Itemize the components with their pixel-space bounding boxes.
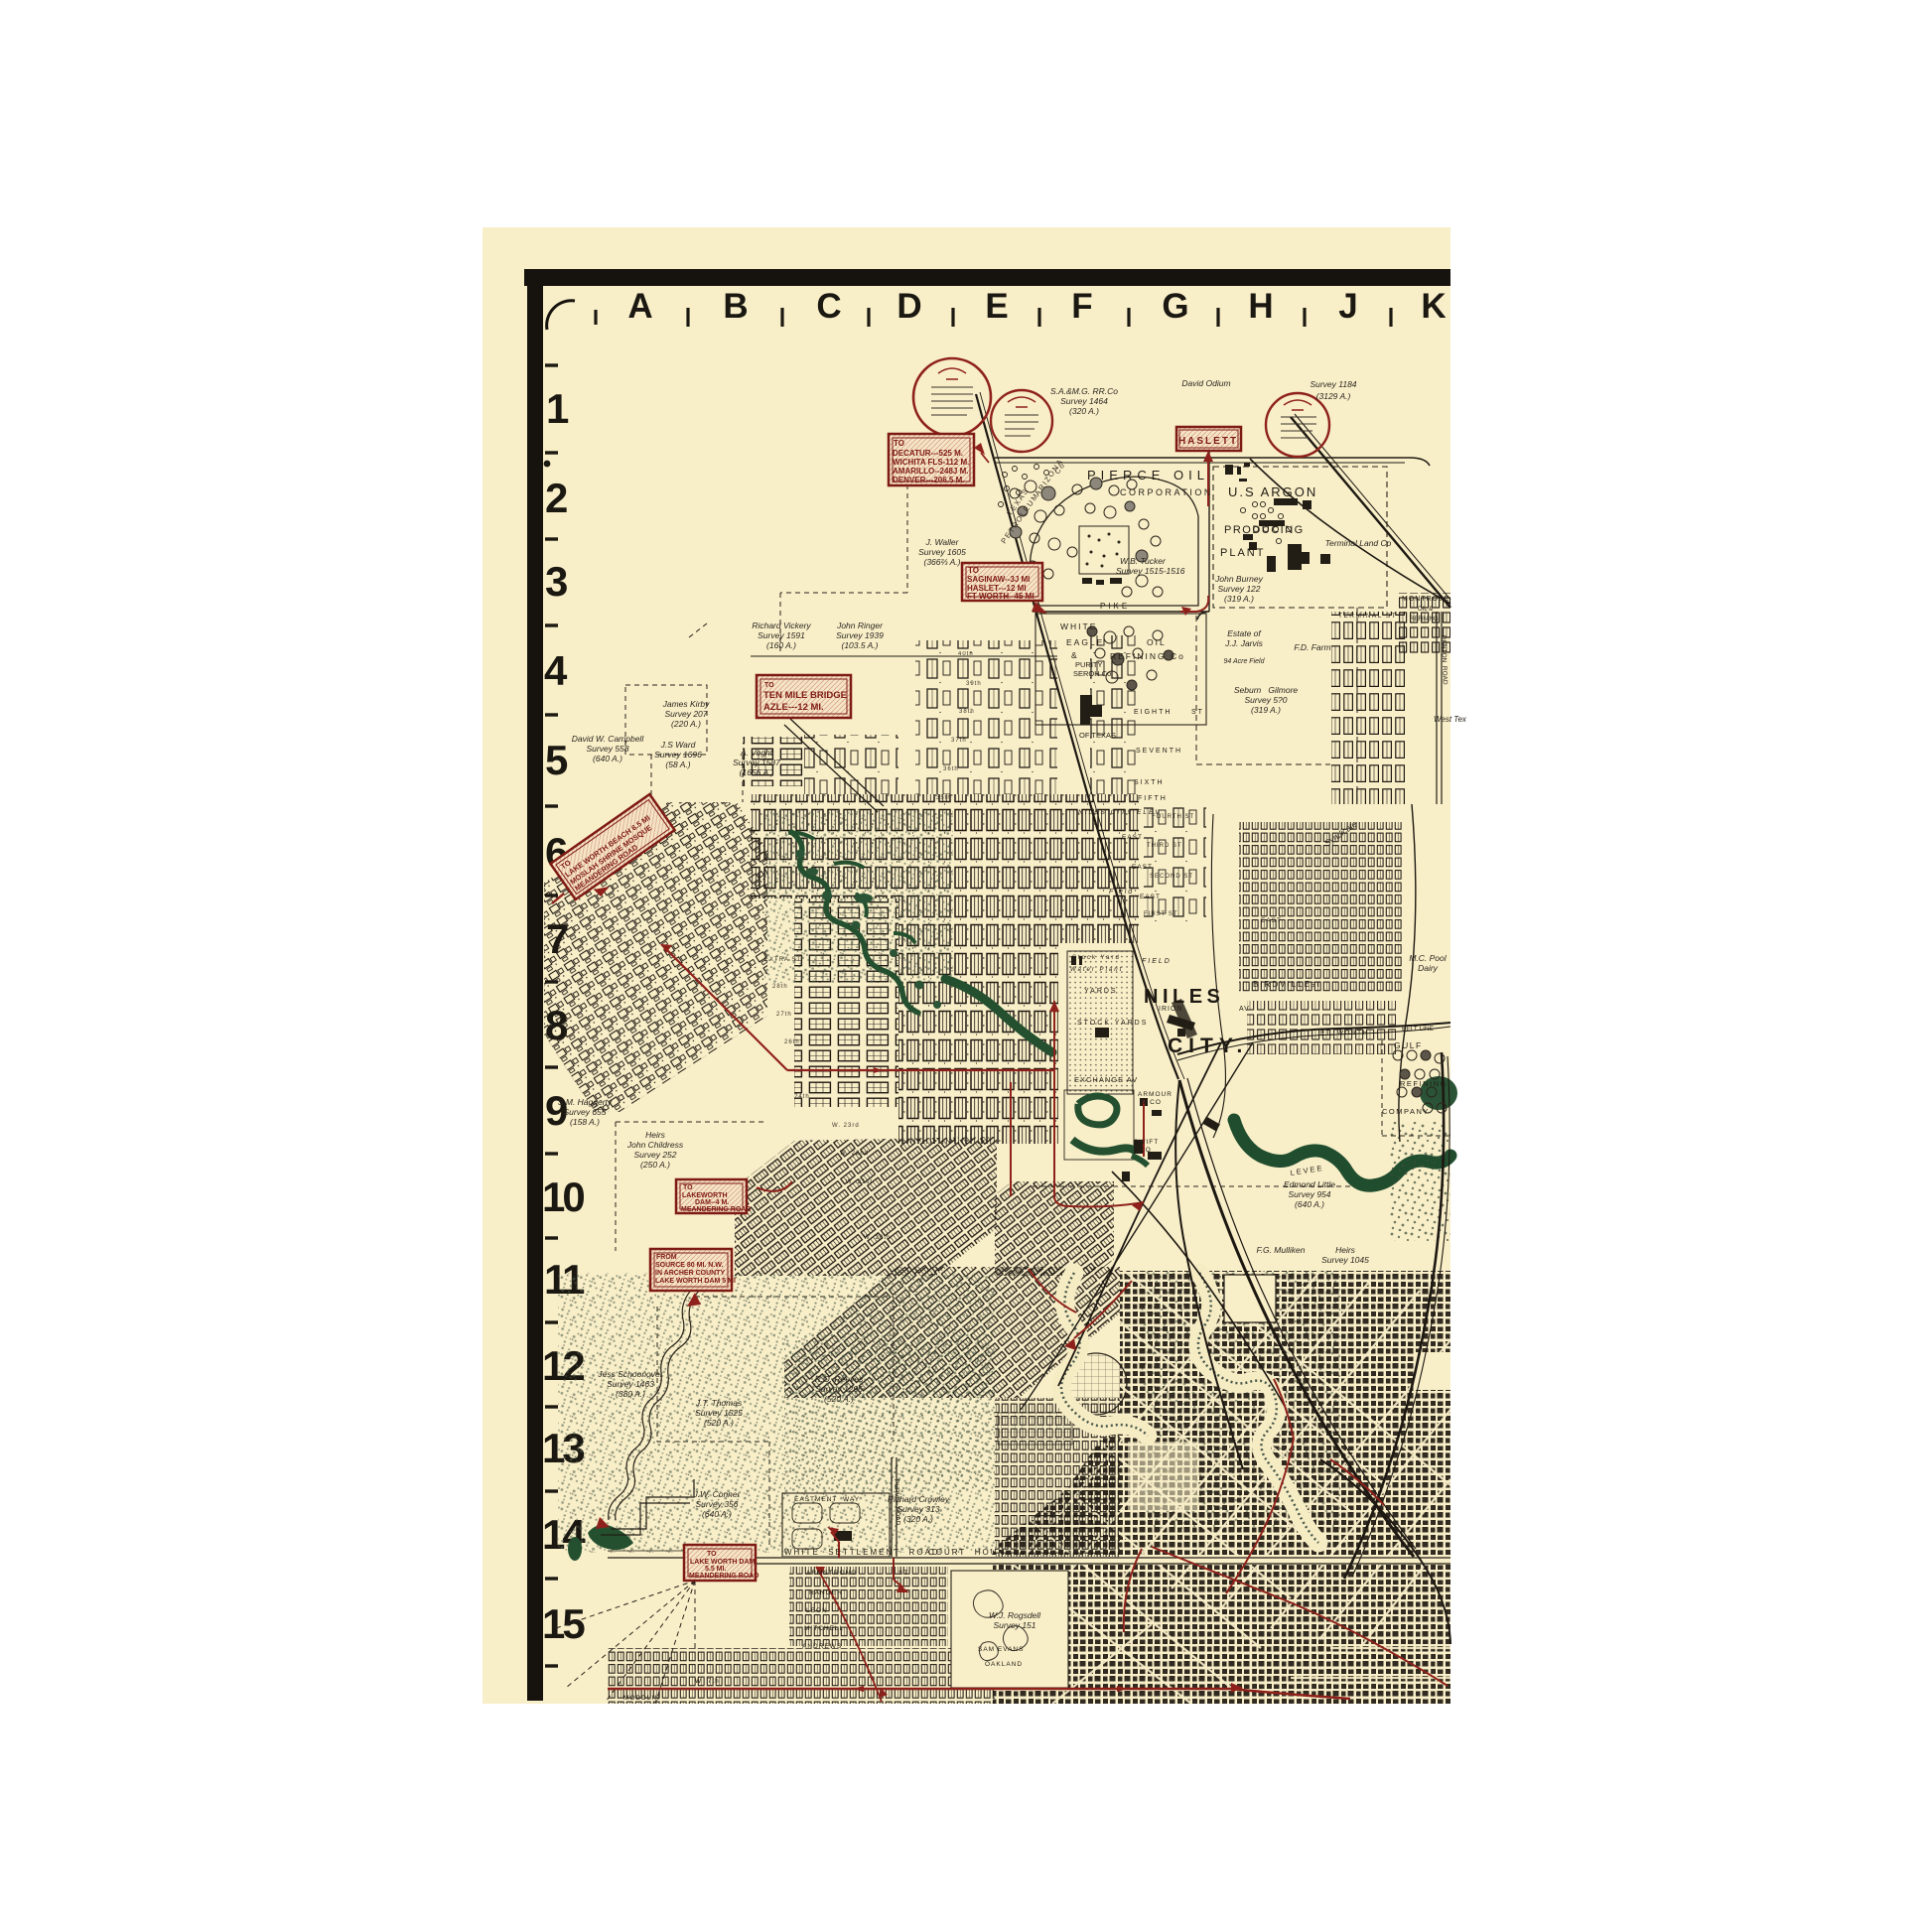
svg-text:W. 20th: W. 20th <box>864 1235 891 1241</box>
svg-text:WHITE: WHITE <box>1060 621 1097 631</box>
svg-text:SECOND ST: SECOND ST <box>1150 874 1193 880</box>
svg-text:David Odium: David Odium <box>1181 378 1230 388</box>
svg-text:36th: 36th <box>943 766 959 772</box>
svg-text:MONTROSE: MONTROSE <box>1402 596 1449 603</box>
svg-text:SAM EVANS: SAM EVANS <box>978 1646 1024 1653</box>
svg-text:G: G <box>1162 287 1188 326</box>
svg-text:PRODUCING: PRODUCING <box>1224 524 1305 536</box>
svg-text:ST: ST <box>1191 709 1204 716</box>
svg-text:S.A.&M.G. RR.Co: S.A.&M.G. RR.Co <box>1050 386 1118 396</box>
svg-text:Survey 1045: Survey 1045 <box>1321 1255 1369 1265</box>
svg-text:ARMOUR: ARMOUR <box>1138 1091 1173 1098</box>
svg-text:Survey 954: Survey 954 <box>1289 1189 1331 1199</box>
svg-text:B: B <box>723 287 748 326</box>
svg-text:J.J. Jarvis: J.J. Jarvis <box>1224 638 1264 648</box>
svg-text:F: F <box>1071 287 1092 326</box>
svg-text:C: C <box>816 287 841 326</box>
svg-text:(58 A.): (58 A.) <box>665 759 690 769</box>
svg-text:BIRDVILLE: BIRDVILLE <box>1253 980 1311 989</box>
svg-text:PLANT: PLANT <box>1220 547 1265 559</box>
svg-text:PURITY: PURITY <box>1075 660 1103 669</box>
svg-text:MITCHELL: MITCHELL <box>804 1625 844 1632</box>
svg-text:Survey 5?0: Survey 5?0 <box>1245 695 1288 705</box>
svg-text:A: A <box>627 287 652 326</box>
svg-text:SWIFT: SWIFT <box>1134 1139 1159 1146</box>
svg-text:Survey 655: Survey 655 <box>564 1107 607 1117</box>
svg-text:27th: 27th <box>776 1012 792 1018</box>
svg-text:Survey 1591: Survey 1591 <box>758 630 805 640</box>
svg-text:S.M. Haggerty: S.M. Haggerty <box>558 1097 613 1107</box>
svg-text:5.5 MI.: 5.5 MI. <box>705 1566 726 1573</box>
svg-text:Survey 1464: Survey 1464 <box>1060 396 1108 406</box>
svg-text:John Childress: John Childress <box>626 1140 684 1150</box>
svg-text:TERMINAL ST: TERMINAL ST <box>1338 613 1397 620</box>
svg-text:REFINING: REFINING <box>1400 1079 1448 1088</box>
svg-text:MEANDERING ROAD: MEANDERING ROAD <box>681 1206 751 1213</box>
svg-text:Edmond Little: Edmond Little <box>1284 1179 1335 1189</box>
svg-text:Survey 1939: Survey 1939 <box>836 630 884 640</box>
svg-text:W. 22nd: W. 22nd <box>840 1151 869 1157</box>
svg-text:(250 A.): (250 A.) <box>640 1160 670 1170</box>
svg-text:Seburn Gilmore: Seburn Gilmore <box>1234 685 1299 695</box>
svg-text:W. 23rd: W. 23rd <box>832 1123 860 1129</box>
svg-text:Survey 122: Survey 122 <box>1218 584 1261 594</box>
svg-text:(103.5 A.): (103.5 A.) <box>841 640 878 650</box>
svg-text:REFINING: REFINING <box>1410 617 1439 622</box>
svg-text:(158 A.): (158 A.) <box>570 1117 600 1127</box>
svg-text:W.J. Rogsdell: W.J. Rogsdell <box>989 1610 1041 1620</box>
svg-text:HASLETT: HASLETT <box>1178 436 1238 447</box>
svg-text:Terminal Land Co: Terminal Land Co <box>1325 538 1392 548</box>
svg-text:FROM: FROM <box>656 1254 677 1261</box>
svg-text:West Tex: West Tex <box>1434 715 1467 724</box>
svg-text:28th: 28th <box>772 984 788 990</box>
svg-text:EXCHANGE AV: EXCHANGE AV <box>1074 1075 1138 1084</box>
svg-text:1: 1 <box>546 385 569 432</box>
svg-text:WHITE SETTLEMENT ROAD: WHITE SETTLEMENT ROAD <box>784 1548 940 1557</box>
svg-text:(160 A.): (160 A.) <box>766 640 796 650</box>
svg-text:THIRD ST: THIRD ST <box>1147 843 1182 849</box>
svg-text:(640 A.): (640 A.) <box>593 754 622 763</box>
svg-text:Survey 207: Survey 207 <box>665 709 708 719</box>
svg-text:5: 5 <box>545 737 568 783</box>
svg-text:FIRST ST: FIRST ST <box>1144 911 1178 917</box>
svg-text:LAKEWORTH: LAKEWORTH <box>682 1192 728 1199</box>
svg-text:(320 A.): (320 A.) <box>903 1514 933 1524</box>
svg-text:FT WORTH--45 MI: FT WORTH--45 MI <box>967 592 1035 601</box>
svg-text:94 Acre Field: 94 Acre Field <box>1224 658 1266 665</box>
svg-text:YARDS: YARDS <box>1084 988 1118 995</box>
svg-text:David W. Campbell: David W. Campbell <box>572 734 645 744</box>
svg-text:AMARILLO--248J M.: AMARILLO--248J M. <box>893 467 968 476</box>
svg-text:PIKE: PIKE <box>1100 602 1130 611</box>
svg-text:REFINING Co: REFINING Co <box>1110 651 1185 661</box>
svg-text:BELT LINE: BELT LINE <box>1402 1026 1435 1033</box>
svg-text:F.D. Farm: F.D. Farm <box>1294 642 1330 652</box>
svg-text:35th: 35th <box>936 795 952 801</box>
svg-text:John Burney: John Burney <box>1214 574 1263 584</box>
svg-text:U.S ARGON: U.S ARGON <box>1228 484 1317 499</box>
svg-text:OF TEXAS: OF TEXAS <box>1079 731 1116 740</box>
svg-text:38th: 38th <box>959 709 975 715</box>
svg-text:W. 21st: W. 21st <box>846 1179 873 1185</box>
svg-text:Survey 1605: Survey 1605 <box>918 547 966 557</box>
svg-text:ARMSTRONG: ARMSTRONG <box>806 1570 857 1577</box>
svg-text:COURT HOU: COURT HOU <box>928 1548 999 1557</box>
svg-text:Survey 1515-1516: Survey 1515-1516 <box>1116 566 1185 576</box>
svg-text:FIFTH: FIFTH <box>1138 795 1168 802</box>
svg-text:EAST: EAST <box>1261 917 1282 924</box>
svg-text:Richard Crowley: Richard Crowley <box>888 1494 950 1504</box>
svg-text:Survey 1463: Survey 1463 <box>607 1379 654 1389</box>
svg-text:DENVER---206.5 M.: DENVER---206.5 M. <box>893 476 964 484</box>
svg-text:&: & <box>1071 650 1079 660</box>
svg-text:OAKLAND: OAKLAND <box>985 1661 1023 1668</box>
svg-text:SEVENTH: SEVENTH <box>1136 748 1182 755</box>
svg-text:F.G. Mulliken: F.G. Mulliken <box>1257 1245 1306 1255</box>
svg-text:CITY.: CITY. <box>1168 1035 1248 1057</box>
svg-text:TO: TO <box>968 566 979 575</box>
svg-text:A. Voght: A. Voght <box>740 748 773 758</box>
svg-text:J. Waller: J. Waller <box>925 537 960 547</box>
svg-text:Survey 313: Survey 313 <box>897 1504 940 1514</box>
svg-text:DAM--4 M.: DAM--4 M. <box>695 1199 729 1206</box>
svg-text:STOCK YARDS: STOCK YARDS <box>1077 1020 1148 1027</box>
svg-text:CORPORATION: CORPORATION <box>1120 487 1213 497</box>
svg-text:J.S Ward: J.S Ward <box>660 740 696 750</box>
svg-text:Water Plant: Water Plant <box>1070 967 1123 973</box>
svg-text:Estate of: Estate of <box>1227 628 1262 638</box>
svg-text:W 7th: W 7th <box>695 1678 720 1685</box>
svg-text:39th: 39th <box>966 681 982 687</box>
svg-text:SIXTH: SIXTH <box>1134 779 1165 786</box>
svg-text:D: D <box>897 287 921 326</box>
svg-text:E: E <box>985 287 1008 326</box>
svg-text:3: 3 <box>545 558 567 605</box>
svg-text:Survey 1295: Survey 1295 <box>815 1384 863 1394</box>
svg-text:EAST: EAST <box>1122 834 1143 841</box>
svg-text:EAST: EAST <box>1140 894 1161 900</box>
svg-text:W.B. Tucker: W.B. Tucker <box>1120 556 1167 566</box>
svg-text:(320 A.): (320 A.) <box>1069 406 1099 416</box>
svg-text:RANGER: RANGER <box>809 1589 843 1596</box>
svg-text:Survey 252: Survey 252 <box>634 1150 677 1160</box>
svg-text:LAKE WORTH DAM 5 MI: LAKE WORTH DAM 5 MI <box>655 1278 736 1285</box>
svg-text:Survey 558: Survey 558 <box>587 744 629 754</box>
svg-text:R.O. Reeves: R.O. Reeves <box>815 1374 864 1384</box>
svg-text:(1656 A.): (1656 A.) <box>740 767 774 777</box>
svg-text:15: 15 <box>542 1600 585 1647</box>
svg-text:10: 10 <box>542 1173 584 1220</box>
svg-text:40th: 40th <box>958 651 974 657</box>
svg-text:(319 A.): (319 A.) <box>1251 705 1281 715</box>
svg-text:(640 A.): (640 A.) <box>702 1509 732 1519</box>
svg-text:(319 A.): (319 A.) <box>1224 594 1254 604</box>
svg-text:John Ringer: John Ringer <box>836 621 884 630</box>
svg-text:IN ARCHER COUNTY: IN ARCHER COUNTY <box>655 1270 725 1277</box>
svg-text:Survey 151: Survey 151 <box>994 1620 1036 1630</box>
svg-text:(220 A.): (220 A.) <box>671 719 701 729</box>
svg-text:K: K <box>1421 287 1446 326</box>
svg-text:2: 2 <box>545 475 567 521</box>
svg-text:Survey 1184: Survey 1184 <box>1310 379 1356 389</box>
svg-text:TO: TO <box>894 439 904 448</box>
svg-text:(3129 A.): (3129 A.) <box>1316 391 1351 401</box>
svg-text:SAGINAW--3J MI: SAGINAW--3J MI <box>967 575 1030 584</box>
svg-text:DECATUR---525 M.: DECATUR---525 M. <box>893 449 963 458</box>
svg-text:J: J <box>1338 287 1357 326</box>
svg-text:Field: Field <box>1109 889 1134 896</box>
svg-text:CO: CO <box>1140 1147 1152 1154</box>
svg-text:ST: ST <box>898 1570 908 1577</box>
svg-text:FOURTH ST: FOURTH ST <box>1152 814 1194 820</box>
svg-text:37th: 37th <box>951 738 967 744</box>
svg-text:(380 A.): (380 A.) <box>616 1389 645 1399</box>
svg-text:SOURCE 80 MI. N.W.: SOURCE 80 MI. N.W. <box>655 1262 724 1269</box>
svg-text:AV: AV <box>1239 1006 1250 1013</box>
svg-text:TO: TO <box>683 1184 693 1191</box>
svg-text:J.T. Thomas: J.T. Thomas <box>695 1398 743 1408</box>
svg-text:J.W. Conner: J.W. Conner <box>693 1489 742 1499</box>
svg-text:OIL: OIL <box>1147 637 1167 647</box>
svg-text:Survey 1696: Survey 1696 <box>654 750 702 759</box>
svg-text:MEANDERING ROAD: MEANDERING ROAD <box>689 1573 759 1580</box>
svg-text:Heirs: Heirs <box>645 1130 666 1140</box>
svg-text:M.C. Pool: M.C. Pool <box>1409 953 1447 963</box>
svg-text:ST: ST <box>1311 982 1321 989</box>
svg-text:Jess Schoonover: Jess Schoonover <box>597 1369 663 1379</box>
svg-text:EASTMENT WAY: EASTMENT WAY <box>794 1496 860 1503</box>
svg-text:Richard Vickery: Richard Vickery <box>752 621 811 630</box>
svg-text:EXTRA ST: EXTRA ST <box>764 957 801 963</box>
svg-text:Survey 1525: Survey 1525 <box>695 1408 743 1418</box>
svg-text:NILES: NILES <box>1144 986 1224 1008</box>
svg-text:WICHITA FLS-112 M.: WICHITA FLS-112 M. <box>893 458 969 467</box>
svg-text:PIERCE OIL: PIERCE OIL <box>1087 468 1209 483</box>
svg-text:Survey 356: Survey 356 <box>696 1499 739 1509</box>
svg-text:James Kirby: James Kirby <box>662 699 711 709</box>
svg-text:COMPANY: COMPANY <box>1382 1107 1430 1116</box>
svg-text:26th: 26th <box>784 1039 800 1045</box>
svg-text:FIELD: FIELD <box>1142 958 1172 965</box>
svg-text:FT. WORTH: FT. WORTH <box>1320 1030 1369 1036</box>
svg-text:EAGLE: EAGLE <box>1066 637 1104 647</box>
svg-text:EIGHTH: EIGHTH <box>1134 709 1172 716</box>
svg-text:GULF: GULF <box>1394 1040 1423 1050</box>
svg-text:Dairy: Dairy <box>1418 963 1439 973</box>
svg-text:(520 A.): (520 A.) <box>824 1394 854 1404</box>
svg-text:Heirs: Heirs <box>1335 1245 1356 1255</box>
svg-text:(640 A.): (640 A.) <box>1295 1199 1324 1209</box>
svg-text:SEROH Co: SEROH Co <box>1073 669 1111 678</box>
svg-text:(366⅔ A.): (366⅔ A.) <box>923 557 960 567</box>
svg-text:TEN MILE BRIDGE: TEN MILE BRIDGE <box>763 690 847 701</box>
svg-text:TO: TO <box>764 682 774 689</box>
svg-text:24th: 24th <box>794 1094 810 1100</box>
svg-text:IRION: IRION <box>1159 1006 1182 1013</box>
svg-text:AZLE---12 MI.: AZLE---12 MI. <box>763 702 824 713</box>
svg-text:& CO: & CO <box>1142 1099 1162 1106</box>
svg-text:LEON: LEON <box>806 1607 828 1614</box>
svg-text:EAST: EAST <box>1132 864 1153 871</box>
svg-text:Survey 1587: Survey 1587 <box>733 758 780 767</box>
svg-text:H: H <box>1248 287 1273 326</box>
svg-text:ANDREWS: ANDREWS <box>802 1643 842 1650</box>
svg-text:TO: TO <box>707 1551 717 1558</box>
svg-text:OIL &: OIL & <box>1418 607 1433 613</box>
svg-text:(520 A.): (520 A.) <box>704 1418 734 1428</box>
svg-text:MODDLIN: MODDLIN <box>623 1695 660 1702</box>
svg-text:Stock Yard: Stock Yard <box>1072 955 1121 961</box>
svg-text:LAKE WORTH DAM: LAKE WORTH DAM <box>690 1559 755 1566</box>
